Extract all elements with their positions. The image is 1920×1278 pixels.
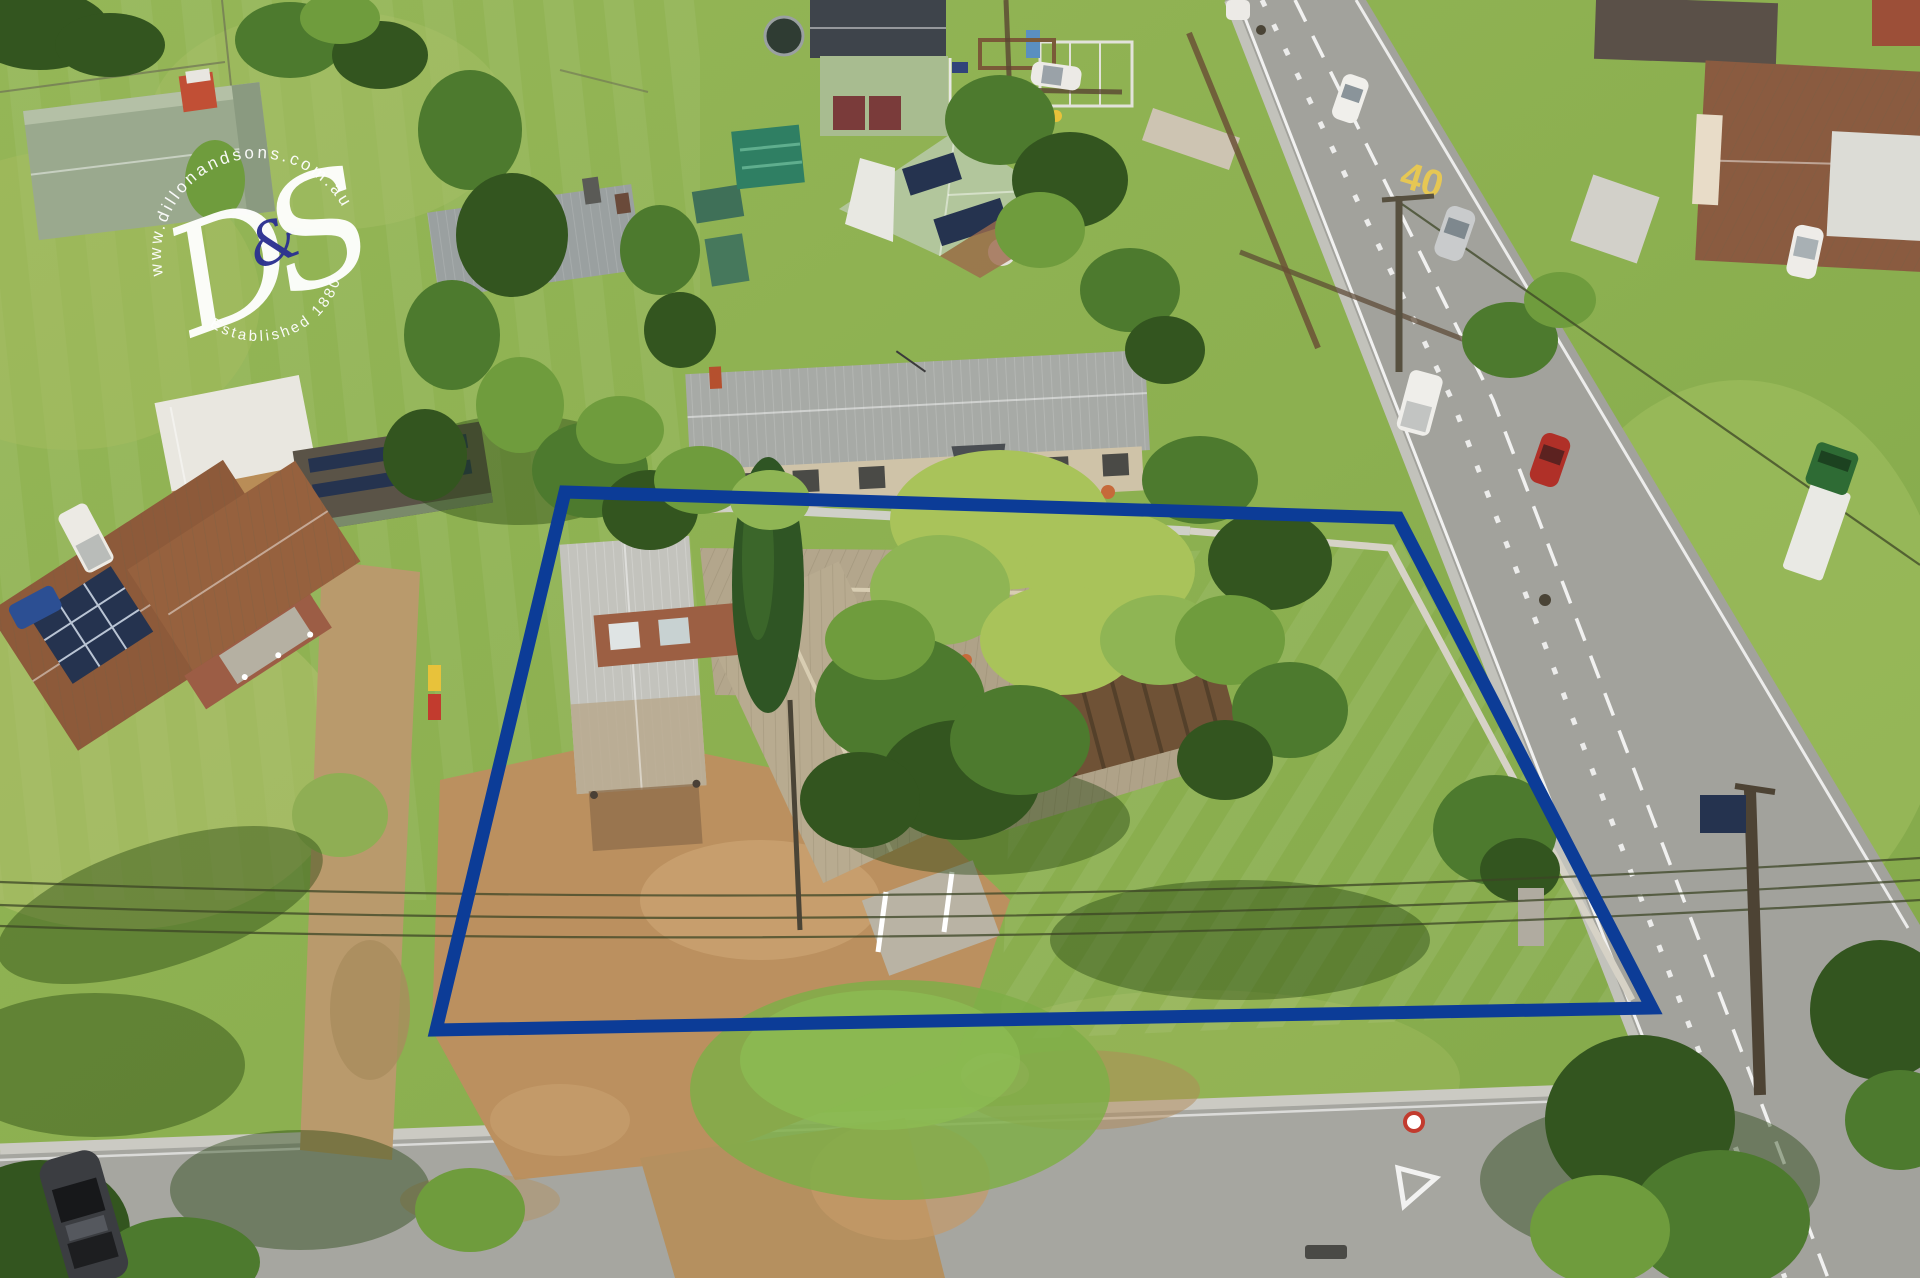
power-pole [1256,25,1266,35]
portaloo [1026,30,1040,58]
two-storey-house-top [810,0,968,136]
give-way-sign [1405,1113,1423,1131]
power-pole [1539,594,1551,606]
concrete-post [1518,888,1544,946]
red-bin [428,694,441,720]
aerial-property-photo: 40 [0,0,1920,1278]
trampoline [765,17,803,55]
roof-flue [709,366,722,389]
yellow-bin [428,665,441,691]
white-ute-top [1226,0,1250,20]
flag [952,62,968,73]
storm-drain [1305,1245,1347,1259]
